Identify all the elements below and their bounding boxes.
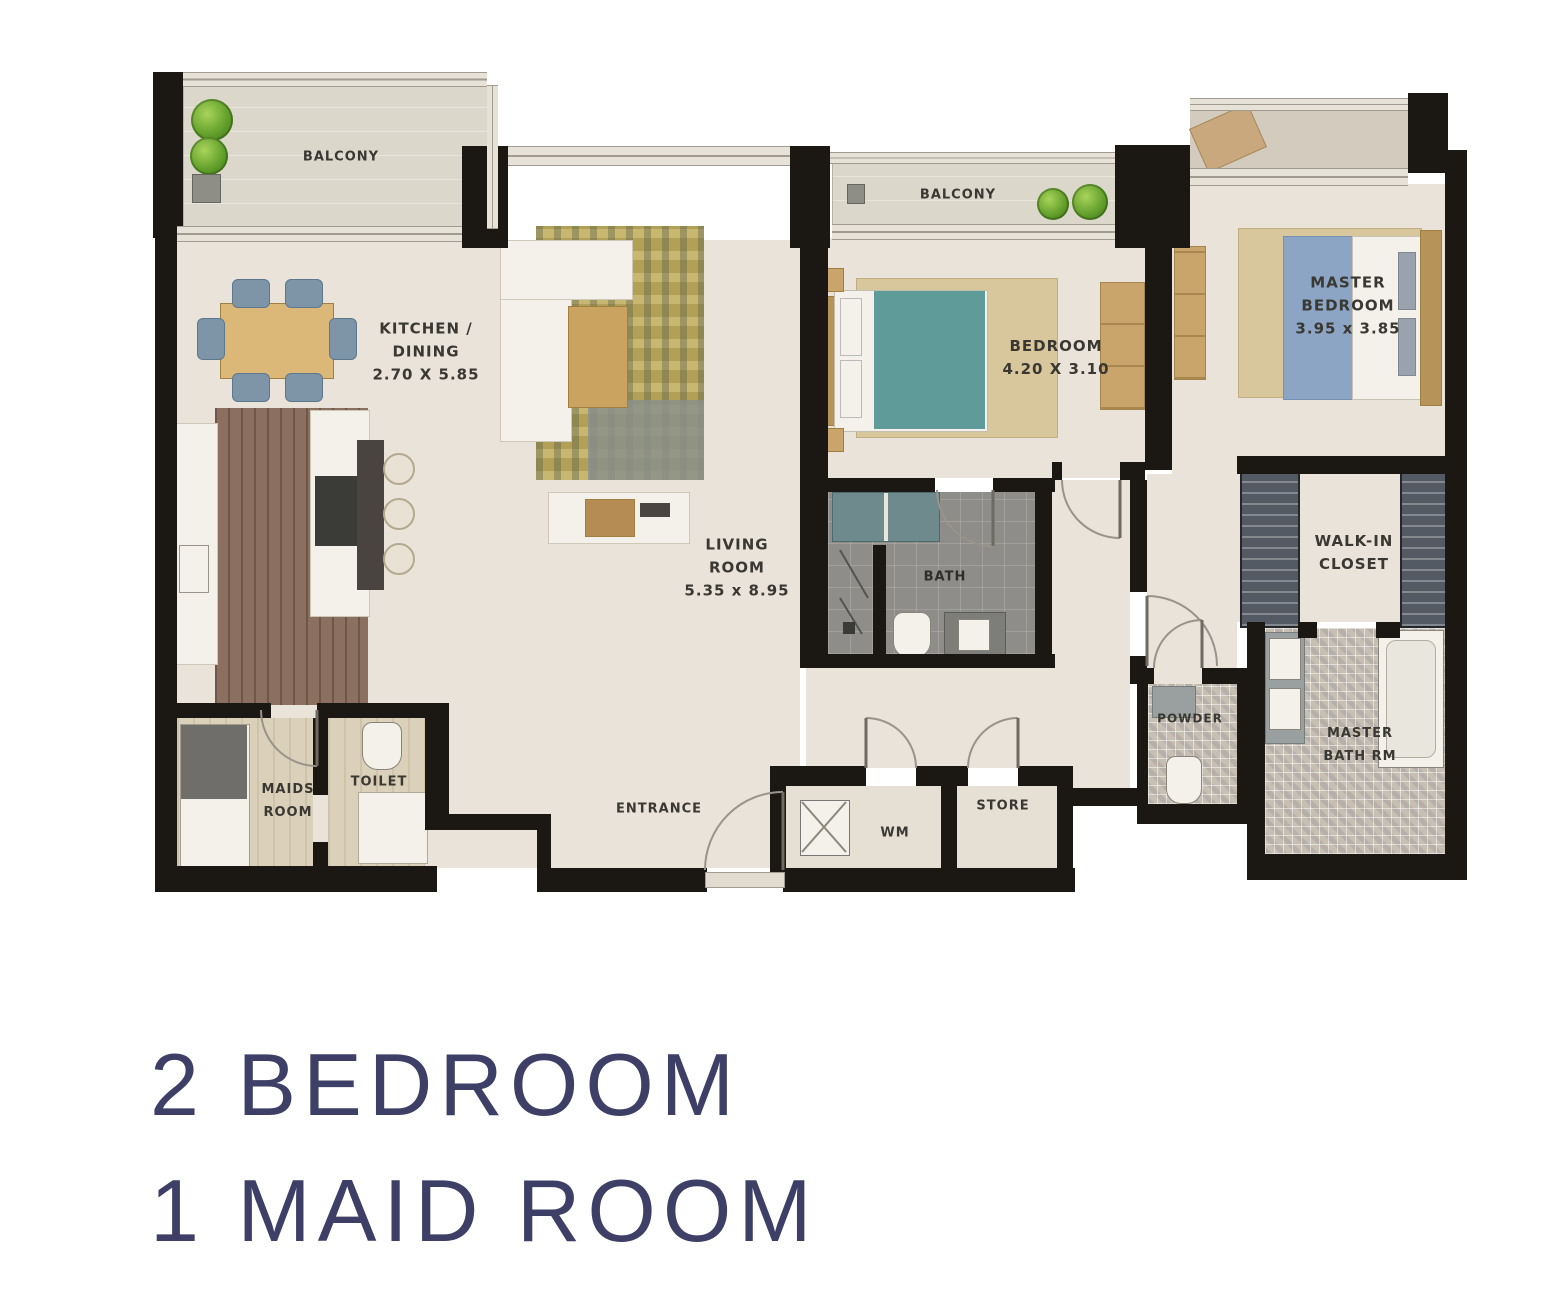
master-bedroom-dims: 3.95 x 3.85 (1295, 318, 1400, 341)
walk-in-line2: CLOSET (1315, 553, 1394, 576)
label-master-bath: MASTER BATH RM (1323, 722, 1396, 768)
master-bedroom-line2: BEDROOM (1295, 295, 1400, 318)
door-arc-vestibule (1147, 596, 1217, 666)
bath-label-text: BATH (924, 570, 967, 585)
label-entrance: ENTRANCE (616, 798, 702, 821)
label-powder: POWDER (1157, 708, 1223, 731)
label-wm: WM (880, 822, 909, 845)
door-arc-bath (937, 490, 993, 546)
label-bedroom: BEDROOM 4.20 X 3.10 (1002, 335, 1109, 381)
door-arc-bedroom (1062, 480, 1120, 538)
shower-lines-icon (840, 550, 868, 634)
title-line1: 2 BEDROOM (150, 1022, 819, 1148)
living-label-line1: LIVING (684, 534, 789, 557)
kitchen-dims: 2.70 X 5.85 (372, 364, 479, 387)
label-kitchen: KITCHEN / DINING 2.70 X 5.85 (372, 318, 479, 387)
walk-in-line1: WALK-IN (1315, 530, 1394, 553)
kitchen-label-line1: KITCHEN / (372, 318, 479, 341)
label-balcony-mid: BALCONY (920, 184, 996, 207)
store-label-text: STORE (976, 799, 1029, 814)
label-living: LIVING ROOM 5.35 x 8.95 (684, 534, 789, 603)
bedroom-dims: 4.20 X 3.10 (1002, 358, 1109, 381)
living-label-line2: ROOM (684, 557, 789, 580)
label-maids-room: MAIDS ROOM (262, 778, 315, 824)
shower-drain (843, 622, 855, 634)
door-arc-powder (1154, 620, 1202, 668)
powder-label-text: POWDER (1157, 712, 1223, 726)
toilet-label-text: TOILET (351, 775, 408, 790)
living-dims: 5.35 x 8.95 (684, 580, 789, 603)
label-master-bedroom: MASTER BEDROOM 3.95 x 3.85 (1295, 272, 1400, 341)
entrance-label-text: ENTRANCE (616, 802, 702, 817)
master-bath-line2: BATH RM (1323, 745, 1396, 768)
title-line2: 1 MAID ROOM (150, 1148, 819, 1274)
door-arc-entrance (705, 792, 783, 870)
maids-line2: ROOM (262, 801, 315, 824)
balcony-label-text: BALCONY (303, 150, 379, 165)
label-walk-in-closet: WALK-IN CLOSET (1315, 530, 1394, 576)
master-bedroom-line1: MASTER (1295, 272, 1400, 295)
wm-label-text: WM (880, 826, 909, 841)
door-arc-maids (261, 710, 317, 766)
washing-machine-x-icon (802, 802, 846, 852)
maids-line1: MAIDS (262, 778, 315, 801)
label-balcony-left: BALCONY (303, 146, 379, 169)
master-bath-line1: MASTER (1323, 722, 1396, 745)
kitchen-label-line2: DINING (372, 341, 479, 364)
door-arc-store (968, 718, 1018, 768)
label-store: STORE (976, 795, 1029, 818)
label-toilet: TOILET (351, 771, 408, 794)
door-arc-wm (866, 718, 916, 768)
floor-plan-page: BALCONY BALCONY KITCHEN / DINING 2.70 X … (0, 0, 1566, 1289)
bedroom-label-text: BEDROOM (1002, 335, 1109, 358)
plan-title: 2 BEDROOM 1 MAID ROOM (150, 1022, 819, 1274)
label-bath: BATH (924, 566, 967, 589)
balcony-label-text: BALCONY (920, 188, 996, 203)
